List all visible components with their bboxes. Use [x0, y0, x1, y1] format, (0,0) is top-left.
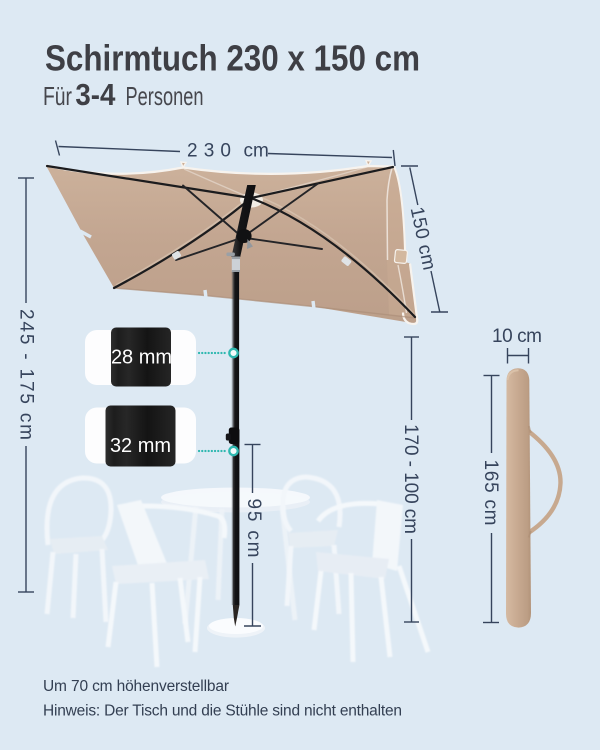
svg-text:245 - 175 cm: 245 - 175 cm: [16, 309, 37, 440]
svg-text:28 mm: 28 mm: [111, 347, 172, 369]
svg-text:32 mm: 32 mm: [110, 435, 171, 457]
svg-text:Für: Für: [43, 81, 72, 111]
svg-text:Um 70 cm höhenverstellbar: Um 70 cm höhenverstellbar: [43, 678, 229, 695]
svg-text:170 - 100 cm: 170 - 100 cm: [400, 424, 421, 534]
svg-text:165 cm: 165 cm: [480, 460, 501, 526]
svg-text:3-4: 3-4: [75, 77, 116, 112]
svg-text:Personen: Personen: [126, 81, 204, 111]
svg-text:Hinweis: Der Tisch und die Stü: Hinweis: Der Tisch und die Stühle sind n…: [43, 703, 402, 720]
svg-text:230: 230: [187, 141, 231, 162]
svg-text:95 cm: 95 cm: [243, 499, 264, 558]
svg-text:cm: cm: [244, 141, 269, 162]
svg-text:Schirmtuch 230 x 150 cm: Schirmtuch 230 x 150 cm: [45, 38, 420, 79]
svg-text:10 cm: 10 cm: [492, 326, 542, 347]
